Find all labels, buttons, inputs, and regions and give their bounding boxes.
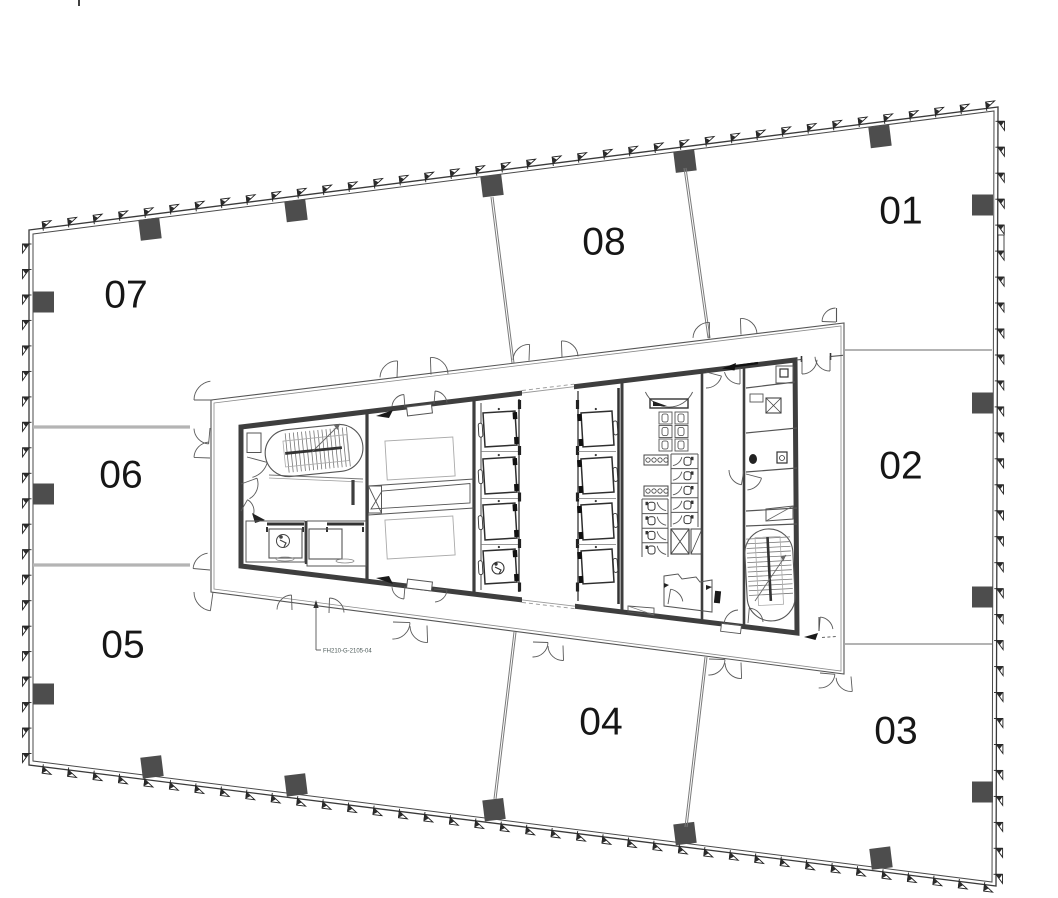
svg-text:02: 02 [879,445,922,488]
svg-text:01: 01 [879,190,922,233]
svg-text:04: 04 [579,701,622,744]
svg-text:07: 07 [104,274,147,317]
svg-text:FH210-G-2105-04: FH210-G-2105-04 [323,649,372,655]
svg-text:06: 06 [99,454,142,497]
svg-text:05: 05 [101,624,144,667]
svg-text:08: 08 [582,221,625,264]
svg-text:03: 03 [874,710,917,753]
